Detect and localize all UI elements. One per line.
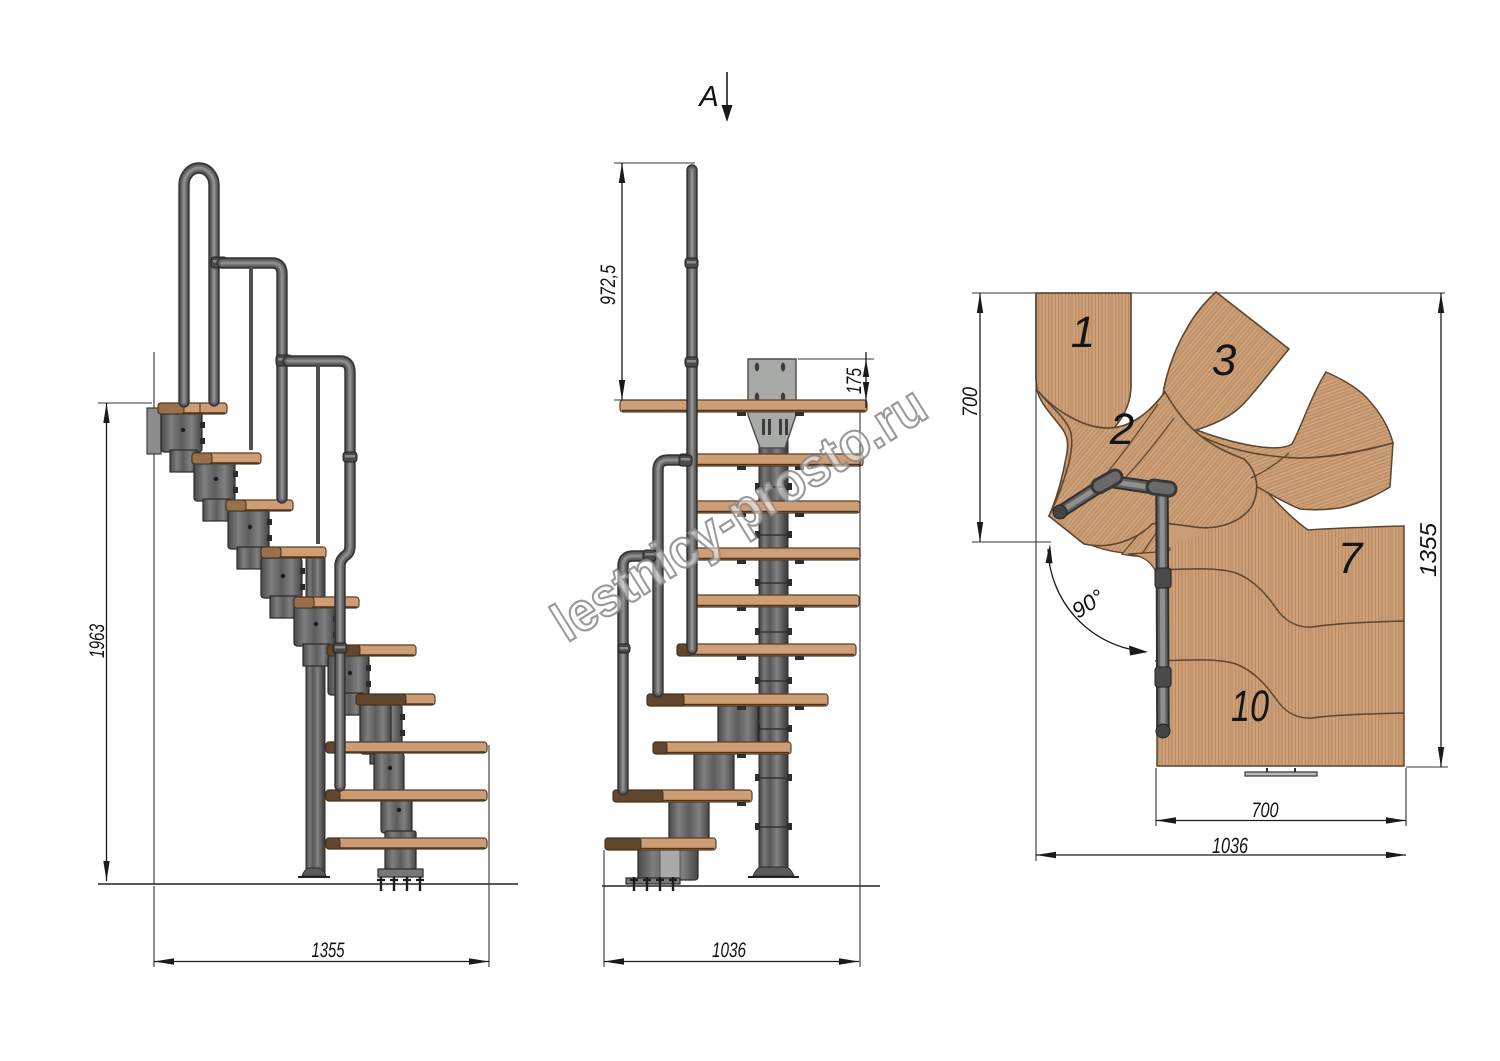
svg-text:2: 2	[1109, 405, 1135, 454]
svg-text:1355: 1355	[311, 939, 344, 962]
svg-text:1036: 1036	[712, 939, 746, 962]
svg-text:700: 700	[1251, 799, 1278, 822]
svg-text:1963: 1963	[86, 624, 109, 658]
svg-text:1: 1	[1071, 308, 1096, 357]
svg-text:A: A	[697, 81, 718, 113]
svg-text:1355: 1355	[1415, 523, 1441, 577]
svg-text:10: 10	[1231, 682, 1269, 731]
svg-text:7: 7	[1338, 534, 1364, 583]
svg-text:175: 175	[843, 368, 866, 394]
svg-text:700: 700	[959, 387, 982, 417]
svg-text:1036: 1036	[1212, 833, 1249, 858]
svg-text:972,5: 972,5	[597, 265, 620, 305]
svg-text:3: 3	[1212, 336, 1237, 385]
